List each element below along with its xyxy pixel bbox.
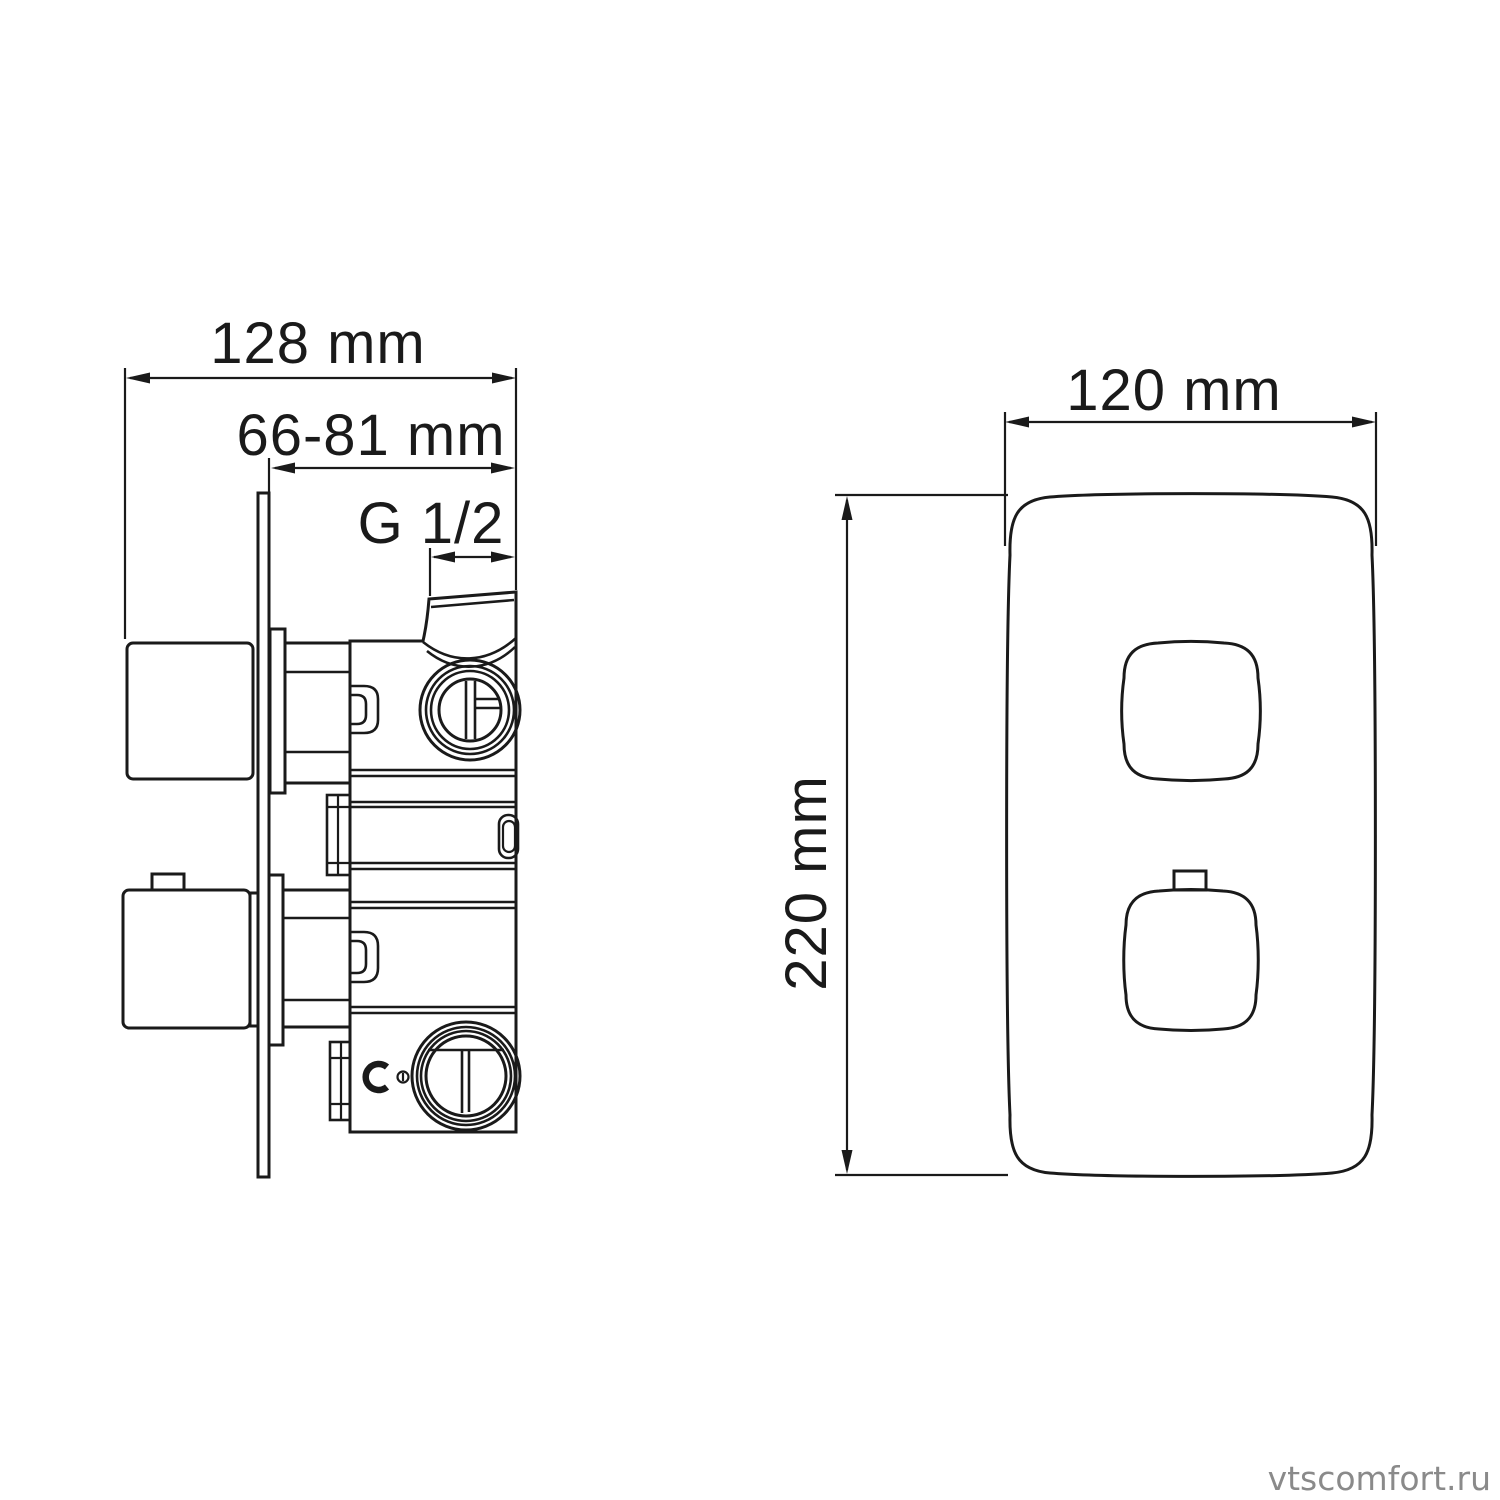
inlet-saddle-curves — [423, 638, 516, 667]
bottom-connector-block — [283, 890, 350, 1027]
bottom-port-ring-1 — [412, 1022, 520, 1130]
arrow-bottom-220 — [842, 1150, 853, 1174]
dimension-mounting-depth: 66-81 mm — [236, 403, 515, 493]
bottom-clip — [350, 932, 378, 982]
top-clip — [350, 686, 378, 733]
inlet-thread-line — [431, 600, 514, 607]
bottom-port-inner — [426, 1036, 506, 1116]
dimension-inlet-thread: G 1/2 — [358, 491, 515, 596]
drawing-canvas: 128 mm 66-81 mm G 1/2 — [0, 0, 1500, 1500]
front-view: 120 mm 220 mm — [774, 358, 1376, 1176]
ext-lines-120 — [1005, 412, 1376, 546]
bottom-handle-collar — [250, 893, 258, 1026]
wall-plate-side — [258, 493, 269, 1177]
dimension-plate-width: 120 mm — [1005, 358, 1376, 546]
trim-plate — [1007, 494, 1376, 1177]
lower-nut — [330, 1042, 350, 1120]
bottom-cartridge — [123, 874, 350, 1045]
side-view: 128 mm 66-81 mm G 1/2 — [123, 311, 520, 1177]
top-port-ring-1 — [420, 660, 520, 760]
top-flange — [270, 629, 285, 793]
middle-nut-lines — [327, 795, 350, 875]
dim-label-128mm: 128 mm — [210, 311, 426, 376]
watermark-text: vtscomfort.ru — [1268, 1459, 1491, 1498]
arrow-right-120 — [1352, 417, 1376, 428]
bottom-port-circle — [412, 1022, 520, 1130]
lower-button — [1124, 890, 1259, 1031]
middle-nut — [327, 795, 350, 875]
top-connector-lines — [285, 672, 350, 752]
technical-drawing-page: 128 mm 66-81 mm G 1/2 — [0, 0, 1500, 1500]
bottom-port-ring-2 — [417, 1027, 515, 1125]
top-port-circle — [420, 660, 520, 760]
dimension-overall-width: 128 mm — [125, 311, 516, 639]
bottom-flange — [269, 875, 283, 1045]
top-port-ring-3 — [431, 671, 509, 749]
dimension-plate-height: 220 mm — [774, 495, 1008, 1175]
dim-label-120mm: 120 mm — [1066, 358, 1282, 423]
dim-label-g12: G 1/2 — [358, 491, 505, 556]
arrow-left-128 — [126, 373, 150, 384]
upper-button — [1122, 642, 1261, 781]
ext-lines-220 — [835, 495, 1008, 1175]
c-clip-mark — [366, 1064, 387, 1090]
top-cartridge — [127, 629, 350, 793]
bottom-port-ring-3 — [421, 1031, 511, 1121]
right-rail-boss-inner — [503, 821, 515, 852]
top-port-inner — [439, 679, 501, 741]
top-connector-block — [285, 643, 350, 783]
dim-label-220mm: 220 mm — [774, 775, 839, 991]
arrow-right-128 — [492, 373, 516, 384]
arrow-top-220 — [842, 496, 853, 520]
lower-button-tab — [1174, 871, 1206, 890]
bottom-handle-stub — [123, 890, 250, 1028]
bottom-connector-lines — [283, 918, 350, 1000]
arrow-left-120 — [1005, 417, 1029, 428]
bottom-handle-button — [152, 874, 184, 890]
bottom-port-slot — [428, 1050, 504, 1113]
dim-label-66-81mm: 66-81 mm — [236, 403, 505, 468]
lower-nut-lines — [330, 1042, 350, 1120]
top-handle-stub — [127, 643, 253, 779]
